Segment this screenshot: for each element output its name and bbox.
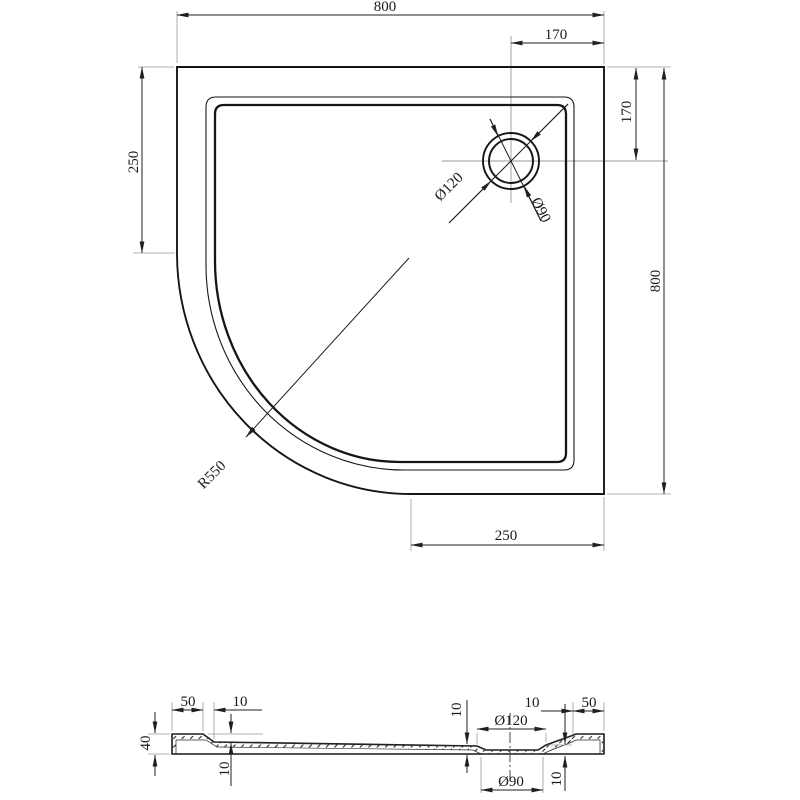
dim-section-d120: Ø120 (477, 713, 546, 729)
dim-right-step-label: 10 (525, 695, 540, 711)
dim-right-step-10: 10 (525, 695, 574, 711)
dim-right-depth-label: 10 (549, 772, 565, 787)
dim-left-flat-250: 250 (126, 67, 142, 253)
technical-drawing-sheet: Ø120 Ø90 R550 800 170 170 (0, 0, 800, 800)
dim-plan-width-800: 800 (177, 0, 604, 15)
dim-bottom-flat-250: 250 (411, 528, 604, 545)
dim-drain-offset-top-label: 170 (545, 27, 568, 43)
plan-view: Ø120 Ø90 R550 800 170 170 (126, 0, 671, 551)
dim-drain-offset-top-170: 170 (511, 27, 604, 43)
dim-section-d90: Ø90 (481, 774, 543, 790)
dim-left-flat-label: 250 (126, 151, 142, 174)
dim-plan-height-label: 800 (648, 270, 664, 293)
dim-bottom-flat-label: 250 (495, 528, 518, 544)
dim-section-d120-label: Ø120 (494, 713, 527, 729)
shower-tray-drawing: Ø120 Ø90 R550 800 170 170 (0, 0, 800, 800)
dim-mid-depth-10: 10 (449, 700, 467, 773)
dim-left-rim-label: 50 (181, 694, 196, 710)
dim-plan-height-800: 800 (648, 68, 664, 494)
dim-corner-radius-label: R550 (195, 458, 229, 492)
dim-corner-radius: R550 (195, 258, 409, 492)
dim-right-rim-50: 50 (573, 695, 604, 711)
dim-height-label: 40 (138, 736, 154, 751)
d90-arrow-nw (490, 119, 498, 136)
r550-leader (246, 258, 409, 437)
section-view: 50 10 40 10 10 Ø120 Ø90 (138, 694, 604, 793)
dim-right-rim-label: 50 (582, 695, 597, 711)
dim-left-rim-50: 50 (172, 694, 203, 710)
dim-drain-outer-label: Ø120 (432, 170, 467, 205)
dim-section-d90-label: Ø90 (498, 774, 524, 790)
dim-left-depth-label: 10 (217, 762, 233, 777)
dim-height-40: 40 (138, 712, 155, 776)
dim-drain-offset-right-170: 170 (619, 68, 636, 160)
dim-drain-inner-label: Ø90 (528, 195, 554, 225)
dim-left-step-10: 10 (214, 694, 262, 710)
dim-mid-depth-label: 10 (449, 703, 465, 718)
dim-plan-width-label: 800 (374, 0, 397, 15)
tray-outer-outline (177, 67, 604, 494)
dim-left-step-label: 10 (233, 694, 248, 710)
d120-arrow-ne (531, 104, 568, 141)
dim-drain-offset-right-label: 170 (619, 101, 635, 124)
